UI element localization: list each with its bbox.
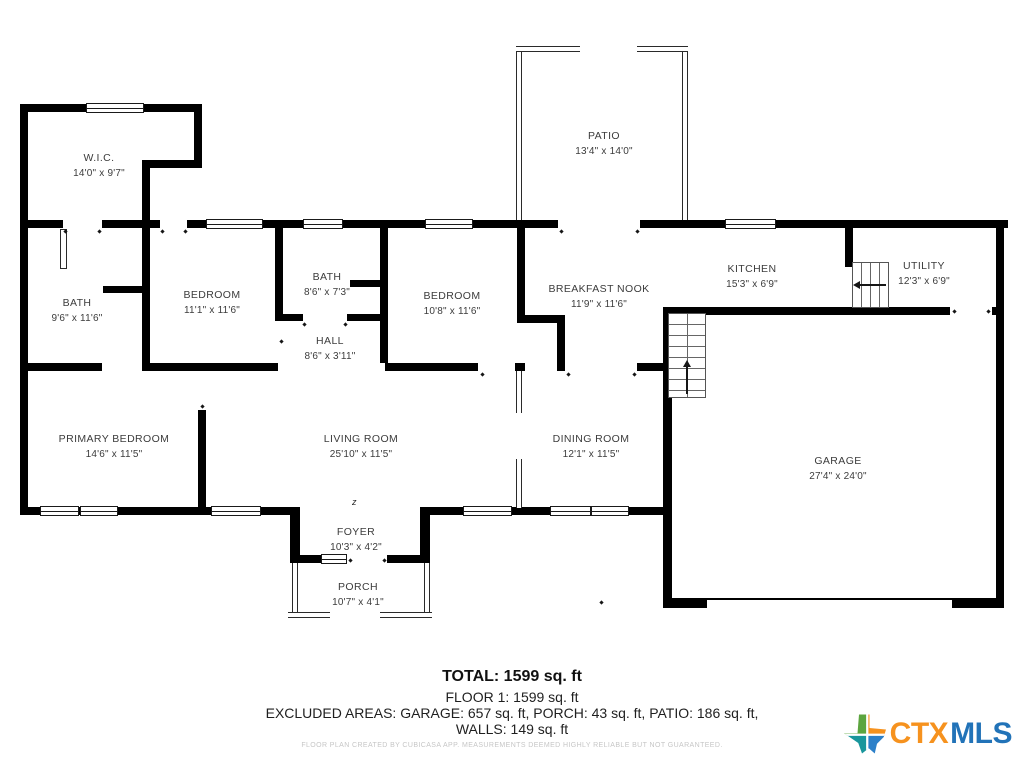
- window-primary-2: [80, 506, 118, 516]
- room-name: PORCH: [332, 581, 384, 594]
- room-name: PATIO: [575, 130, 632, 143]
- room-name: LIVING ROOM: [324, 433, 398, 446]
- room-label-living: LIVING ROOM 25'10" x 11'5": [324, 433, 398, 461]
- patio-wall-top-right: [637, 46, 688, 52]
- window-dining-1: [550, 506, 591, 516]
- room-name: BEDROOM: [423, 290, 480, 303]
- porch-wall-right: [424, 563, 430, 618]
- summary-total: TOTAL: 1599 sq. ft: [0, 668, 1024, 686]
- room-name: UTILITY: [898, 260, 950, 273]
- door-mark: [302, 322, 306, 326]
- logo-text-ctx: CTX: [890, 713, 949, 755]
- door-mark: [183, 229, 187, 233]
- room-label-porch: PORCH 10'7" x 4'1": [332, 581, 384, 609]
- door-wic-bath: [63, 220, 102, 228]
- floor-plan: z W.I.C. 14'0" x 9'7" PATIO 13'4" x 14'0…: [0, 0, 1024, 768]
- room-dims: 13'4" x 14'0": [575, 145, 632, 158]
- porch-step-right: [380, 612, 432, 618]
- patio-wall-left: [516, 46, 522, 224]
- room-name: FOYER: [330, 526, 382, 539]
- room-label-foyer: FOYER 10'3" x 4'2": [330, 526, 382, 554]
- wall-bath2-right: [380, 220, 388, 371]
- room-name: BATH: [52, 297, 103, 310]
- room-name: BEDROOM: [183, 289, 240, 302]
- wall-foyer-left: [290, 507, 300, 563]
- window-dining-2: [591, 506, 629, 516]
- window-kitchen: [725, 219, 776, 229]
- stairs-kitchen-utility: [852, 262, 889, 308]
- room-dims: 14'0" x 9'7": [73, 167, 125, 180]
- patio-wall-right: [682, 46, 688, 224]
- room-dims: 12'3" x 6'9": [898, 275, 950, 288]
- door-mark: [566, 372, 570, 376]
- room-label-bedroom2: BEDROOM 10'8" x 11'6": [423, 290, 480, 318]
- room-dims: 25'10" x 11'5": [324, 448, 398, 461]
- room-name: W.I.C.: [73, 152, 125, 165]
- room-label-hall: HALL 8'6" x 3'11": [305, 335, 356, 363]
- wall-bath2-left: [275, 220, 283, 321]
- room-dims: 14'6" x 11'5": [59, 448, 170, 461]
- texas-icon: [842, 713, 888, 755]
- room-label-wic: W.I.C. 14'0" x 9'7": [73, 152, 125, 180]
- room-label-bath1: BATH 9'6" x 11'6": [52, 297, 103, 325]
- door-primary-bath: [102, 363, 142, 371]
- stairs-garage: [668, 313, 706, 398]
- opening-foyer: [300, 507, 420, 515]
- window-bath2: [303, 219, 343, 229]
- room-dims: 10'7" x 4'1": [332, 596, 384, 609]
- room-label-primary: PRIMARY BEDROOM 14'6" x 11'5": [59, 433, 170, 461]
- door-mark: [632, 372, 636, 376]
- logo-text-mls: MLS: [950, 713, 1012, 755]
- wall-right: [996, 220, 1004, 608]
- room-label-garage: GARAGE 27'4" x 24'0": [809, 455, 866, 483]
- partition-living-dining-top: [516, 371, 522, 413]
- window-bedroom1: [206, 219, 263, 229]
- floor-plan-page: { "rooms": { "wic": {"name": "W.I.C.", "…: [0, 0, 1024, 768]
- room-name: BREAKFAST NOOK: [548, 283, 649, 296]
- door-mark: [279, 339, 283, 343]
- patio-wall-top-left: [516, 46, 580, 52]
- room-dims: 27'4" x 24'0": [809, 470, 866, 483]
- room-dims: 12'1" x 11'5": [553, 448, 630, 461]
- door-bath2: [303, 314, 347, 321]
- wall-left: [20, 104, 28, 515]
- stairs-arrow-head: [683, 360, 691, 367]
- window-living-1: [211, 506, 261, 516]
- porch-wall-left: [292, 563, 298, 618]
- garage-door-line: [707, 598, 952, 600]
- room-label-dining: DINING ROOM 12'1" x 11'5": [553, 433, 630, 461]
- room-dims: 10'8" x 11'6": [423, 305, 480, 318]
- door-mark: [635, 229, 639, 233]
- partition-living-dining-bottom: [516, 459, 522, 508]
- room-label-nook: BREAKFAST NOOK 11'9" x 11'6": [548, 283, 649, 311]
- wall-kitchen-utility: [845, 220, 853, 267]
- window-foyer: [321, 554, 347, 564]
- wall-bedroom2-right: [517, 220, 525, 323]
- wall-nook-ell-v: [557, 315, 565, 371]
- porch-step-left: [288, 612, 330, 618]
- room-dims: 15'3" x 6'9": [726, 278, 778, 291]
- opening-nook-alcove: [525, 363, 557, 371]
- room-label-patio: PATIO 13'4" x 14'0": [575, 130, 632, 158]
- door-patio-slider: [558, 220, 640, 228]
- window-wic: [86, 103, 144, 113]
- wall-wic-right: [194, 104, 202, 168]
- room-label-kitchen: KITCHEN 15'3" x 6'9": [726, 263, 778, 291]
- room-label-utility: UTILITY 12'3" x 6'9": [898, 260, 950, 288]
- room-dims: 10'3" x 4'2": [330, 541, 382, 554]
- room-dims: 8'6" x 7'3": [304, 286, 350, 299]
- door-mark: [599, 600, 603, 604]
- room-name: HALL: [305, 335, 356, 348]
- window-living-2: [463, 506, 512, 516]
- stairs-arrow-head: [853, 281, 860, 289]
- window-bedroom2: [425, 219, 473, 229]
- door-mark: [200, 404, 204, 408]
- door-mark: [559, 229, 563, 233]
- opening-hall: [278, 363, 385, 371]
- window-primary-1: [40, 506, 79, 516]
- north-mark: z: [352, 497, 357, 507]
- room-name: DINING ROOM: [553, 433, 630, 446]
- door-closet: [160, 220, 187, 228]
- door-leaf: [60, 229, 67, 269]
- wall-bath2-stub: [350, 280, 382, 287]
- door-front: [347, 555, 387, 563]
- room-dims: 11'9" x 11'6": [548, 298, 649, 311]
- room-name: BATH: [304, 271, 350, 284]
- wall-bedroom1-left: [142, 160, 150, 371]
- summary-floor: FLOOR 1: 1599 sq. ft: [0, 689, 1024, 705]
- wall-bath1-stub: [103, 286, 142, 293]
- door-mark: [97, 229, 101, 233]
- room-name: PRIMARY BEDROOM: [59, 433, 170, 446]
- door-bedroom2: [478, 363, 515, 371]
- room-name: KITCHEN: [726, 263, 778, 276]
- door-mark: [160, 229, 164, 233]
- room-dims: 11'1" x 11'6": [183, 304, 240, 317]
- stairs-arrow-shaft: [858, 284, 886, 286]
- wall-wic-notch: [142, 160, 202, 168]
- door-dining: [565, 363, 637, 371]
- wall-foyer-right: [420, 507, 430, 563]
- room-dims: 9'6" x 11'6": [52, 312, 103, 325]
- room-label-bath2: BATH 8'6" x 7'3": [304, 271, 350, 299]
- door-mark: [480, 372, 484, 376]
- wall-primary-right: [198, 410, 206, 515]
- door-mark: [343, 322, 347, 326]
- room-dims: 8'6" x 3'11": [305, 350, 356, 363]
- stairs-arrow-shaft: [686, 366, 688, 394]
- ctxmls-logo: CTXMLS: [842, 713, 1012, 755]
- room-name: GARAGE: [809, 455, 866, 468]
- room-label-bedroom1: BEDROOM 11'1" x 11'6": [183, 289, 240, 317]
